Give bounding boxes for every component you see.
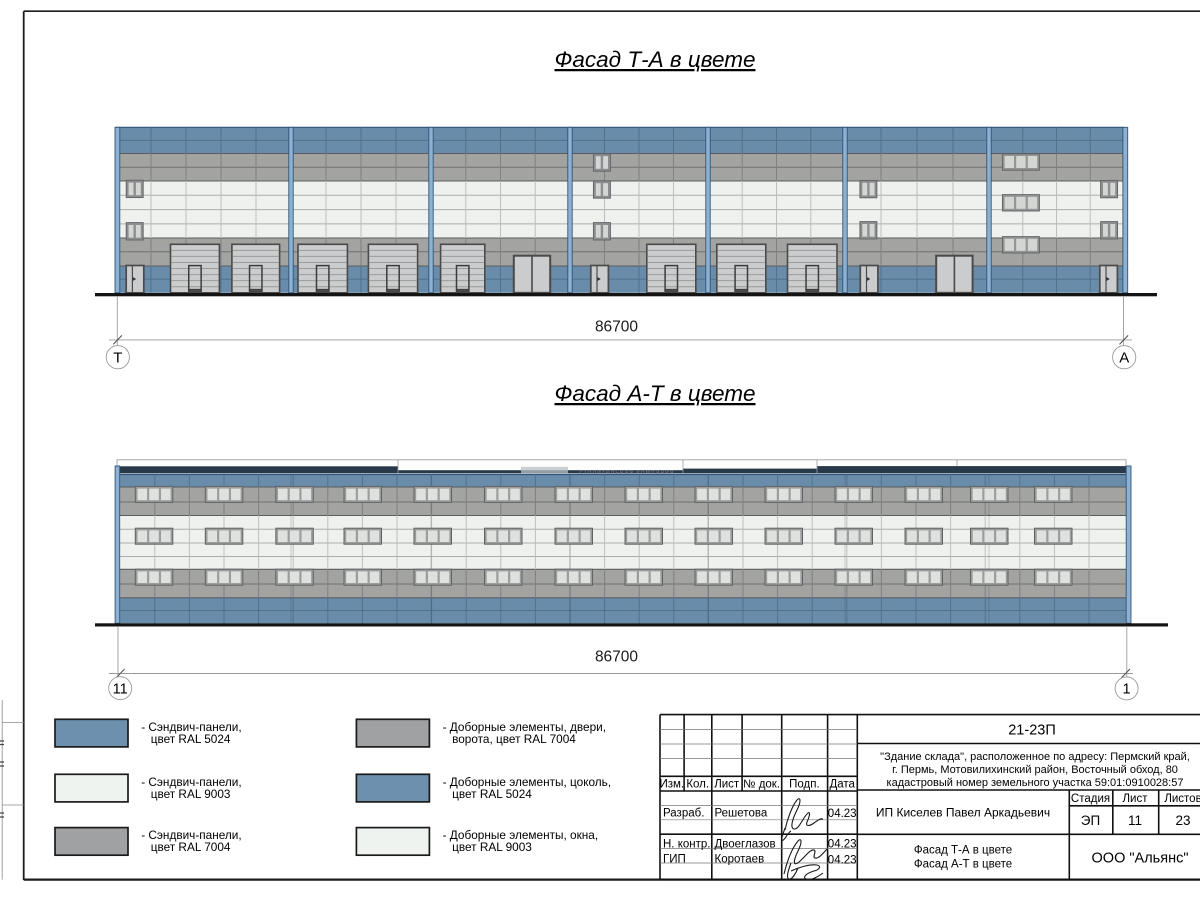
svg-text:Листов: Листов [1164,793,1200,805]
svg-text:ИП Киселев Павел Аркадьевич: ИП Киселев Павел Аркадьевич [876,806,1050,820]
svg-text:А: А [1119,350,1129,367]
svg-text:Дата: Дата [829,779,855,791]
svg-text:цвет RAL 7004: цвет RAL 7004 [151,840,231,854]
svg-text:Стадия: Стадия [1071,793,1110,805]
svg-text:Фасад А-Т в цвете: Фасад А-Т в цвете [914,859,1012,871]
svg-text:цвет RAL 9003: цвет RAL 9003 [452,840,532,854]
svg-text:Т: Т [113,350,122,367]
svg-text:Кол.: Кол. [686,779,709,791]
svg-text:кадастровый номер земельного у: кадастровый номер земельного участка 59:… [887,777,1184,789]
svg-text:04.23: 04.23 [828,839,857,851]
svg-text:Фасад А-Т в цвете: Фасад А-Т в цвете [555,381,756,406]
svg-text:Фасад Т-А в цвете: Фасад Т-А в цвете [555,47,756,72]
svg-text:г. Пермь, Мотовилихинский райо: г. Пермь, Мотовилихинский район, Восточн… [892,764,1178,776]
svg-text:Фасад Т-А в цвете: Фасад Т-А в цвете [914,845,1012,857]
svg-text:ЭП: ЭП [1081,813,1100,828]
svg-text:1: 1 [1123,682,1131,698]
svg-text:цвет RAL 5024: цвет RAL 5024 [452,787,532,801]
svg-text:21-23П: 21-23П [1008,723,1056,739]
svg-text:23: 23 [1175,813,1190,828]
svg-text:Н. контр.: Н. контр. [663,839,710,851]
svg-text:86700: 86700 [595,318,638,335]
svg-text:04.23: 04.23 [828,808,857,820]
svg-text:Двоеглазов: Двоеглазов [715,839,776,851]
svg-text:"Здание склада", расположенное: "Здание склада", расположенное по адресу… [880,751,1190,763]
svg-text:цвет RAL 5024: цвет RAL 5024 [151,732,231,746]
svg-text:Подп.: Подп. [789,779,820,791]
svg-text:Лист: Лист [714,779,740,791]
svg-text:Решетова: Решетова [715,808,768,820]
svg-text:Изм.: Изм. [659,779,684,791]
svg-text:Коротаев: Коротаев [715,854,765,866]
svg-text:ООО "Альянс": ООО "Альянс" [1092,851,1189,867]
svg-text:11: 11 [1128,813,1142,828]
svg-text:ГИП: ГИП [663,854,686,866]
svg-text:Разраб.: Разраб. [663,808,704,820]
svg-text:№ док.: № док. [743,779,780,791]
svg-text:ворота, цвет RAL 7004: ворота, цвет RAL 7004 [452,732,576,746]
svg-text:04.23: 04.23 [828,855,857,867]
svg-text:86700: 86700 [595,649,638,666]
svg-text:цвет RAL 9003: цвет RAL 9003 [151,787,231,801]
svg-text:11: 11 [113,681,128,697]
svg-text:Лист: Лист [1123,793,1149,805]
